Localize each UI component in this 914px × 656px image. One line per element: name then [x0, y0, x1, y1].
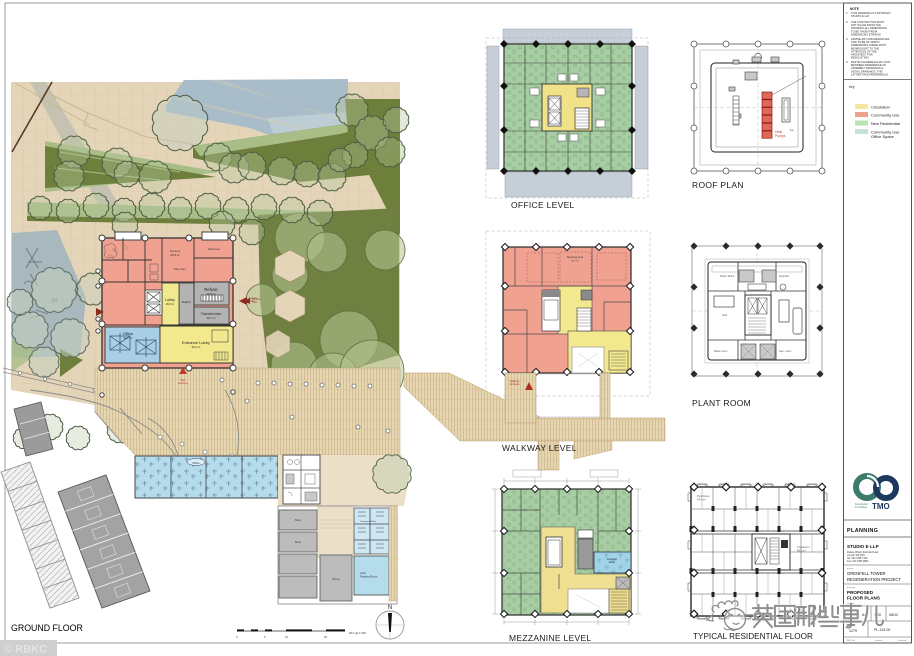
svg-text:2 bedroom: 2 bedroom [797, 545, 809, 549]
svg-text:ROOF PLAN: ROOF PLAN [692, 180, 744, 190]
svg-text:PROPOSED: PROPOSED [847, 590, 874, 595]
svg-text:OFFICE LEVEL: OFFICE LEVEL [511, 200, 575, 210]
svg-text:Circulation: Circulation [871, 104, 890, 109]
svg-text:1279: 1279 [849, 629, 857, 633]
svg-text:REGENERATION PROJECT: REGENERATION PROJECT [847, 577, 901, 582]
svg-text:Boiler room: Boiler room [714, 349, 727, 353]
svg-text:New Residential: New Residential [871, 121, 900, 126]
svg-text:Penthouse: Penthouse [697, 494, 710, 498]
svg-text:checked: checked [898, 640, 907, 642]
svg-text:Key: Key [849, 85, 855, 89]
svg-text:PLANNING: PLANNING [847, 528, 878, 534]
svg-text:Fax: 020 7386 9856: Fax: 020 7386 9856 [847, 560, 869, 563]
svg-text:Room: Room [609, 561, 615, 564]
svg-text:Yard: Yard [252, 301, 258, 304]
svg-text:N: N [388, 605, 392, 611]
svg-text:295.9 m²: 295.9 m² [170, 254, 180, 257]
svg-text:flue: flue [790, 129, 795, 132]
svg-text:STUDIO E LLP: STUDIO E LLP [847, 544, 879, 549]
svg-text:Store: Store [295, 518, 302, 522]
svg-text:Tank: Tank [722, 314, 728, 317]
svg-text:96.2 m²: 96.2 m² [192, 345, 201, 349]
svg-text:Sleeping Area: Sleeping Area [567, 255, 584, 259]
svg-text:DIMENSIONS STRINGS: DIMENSIONS STRINGS [851, 32, 881, 36]
svg-text:PLANT ROOM: PLANT ROOM [692, 398, 751, 408]
svg-text:2.: 2. [846, 20, 848, 24]
svg-text:20m @ 1:200: 20m @ 1:200 [349, 631, 366, 635]
svg-text:Store: Store [295, 540, 302, 544]
svg-text:PL-115 00: PL-115 00 [874, 628, 890, 632]
svg-text:Refuse: Refuse [204, 287, 218, 292]
svg-text:Community Use: Community Use [871, 112, 900, 117]
svg-text:WALKWAY LEVEL: WALKWAY LEVEL [502, 443, 577, 453]
svg-text:26.7 m²: 26.7 m² [207, 316, 216, 320]
svg-text:Office: Office [123, 331, 134, 336]
svg-text:DWG No: DWG No [846, 640, 856, 642]
svg-text:LATTER TAKE PREFERENCE: LATTER TAKE PREFERENCE [851, 72, 888, 76]
svg-text:GROUND FLOOR: GROUND FLOOR [11, 623, 83, 633]
svg-text:MEZZANINE LEVEL: MEZZANINE LEVEL [509, 633, 591, 643]
svg-text:project: project [847, 567, 854, 570]
svg-text:25.8 m²: 25.8 m² [207, 292, 216, 296]
svg-text:52.7 m²: 52.7 m² [124, 336, 133, 340]
svg-text:4.: 4. [846, 60, 848, 64]
svg-text:96.2 m²: 96.2 m² [571, 260, 579, 263]
svg-text:Entrance: Entrance [510, 383, 520, 386]
svg-text:29.9 m²: 29.9 m² [166, 303, 174, 306]
svg-text:08/12: 08/12 [889, 613, 898, 617]
svg-text:5: 5 [264, 635, 266, 639]
svg-text:GRENFELL TOWER: GRENFELL TOWER [847, 571, 886, 576]
svg-text:Office Space: Office Space [871, 134, 895, 139]
svg-text:NOTE: NOTE [850, 7, 859, 11]
svg-text:TMO: TMO [872, 502, 890, 511]
svg-text:STUDIO E LLP: STUDIO E LLP [851, 14, 869, 18]
svg-text:Nursery: Nursery [170, 249, 181, 253]
svg-text:Entrance: Entrance [178, 382, 188, 385]
svg-text:Lobby: Lobby [165, 298, 175, 302]
svg-text:Office: Office [192, 461, 200, 465]
svg-text:© RBKC: © RBKC [4, 644, 47, 656]
svg-text:Reading Room: Reading Room [360, 575, 377, 579]
svg-text:Switch: Switch [182, 300, 191, 304]
svg-text:FLOOR PLANS: FLOOR PLANS [847, 596, 880, 601]
svg-text:Sprinkler: Sprinkler [779, 274, 789, 278]
svg-text:revision: revision [875, 639, 883, 642]
svg-text:Play room: Play room [174, 267, 186, 271]
svg-text:Store: Store [332, 577, 340, 581]
svg-text:Pumps: Pumps [775, 134, 786, 138]
svg-text:3.: 3. [846, 37, 848, 41]
svg-text:Lads: Lads [360, 571, 366, 575]
svg-text:10: 10 [285, 635, 288, 639]
svg-text:TYPICAL RESIDENTIAL FLOOR: TYPICAL RESIDENTIAL FLOOR [693, 632, 813, 641]
svg-text:Gen. room: Gen. room [779, 349, 791, 353]
svg-text:1.: 1. [846, 11, 848, 15]
svg-text:Water Tanks: Water Tanks [720, 274, 735, 278]
svg-text:Classroom: Classroom [208, 247, 220, 251]
svg-text:& Chelsea: & Chelsea [855, 505, 868, 509]
svg-text:Entrance Lobby: Entrance Lobby [182, 340, 210, 345]
svg-text:drawing: drawing [847, 586, 855, 589]
svg-text:78.5 m²: 78.5 m² [697, 498, 706, 502]
svg-text:20: 20 [324, 635, 327, 639]
svg-text:RESOLUTION: RESOLUTION [851, 56, 869, 60]
svg-text:0: 0 [236, 635, 238, 639]
svg-text:Transformer: Transformer [201, 312, 222, 316]
svg-text:Treatment Office: Treatment Office [360, 520, 377, 523]
